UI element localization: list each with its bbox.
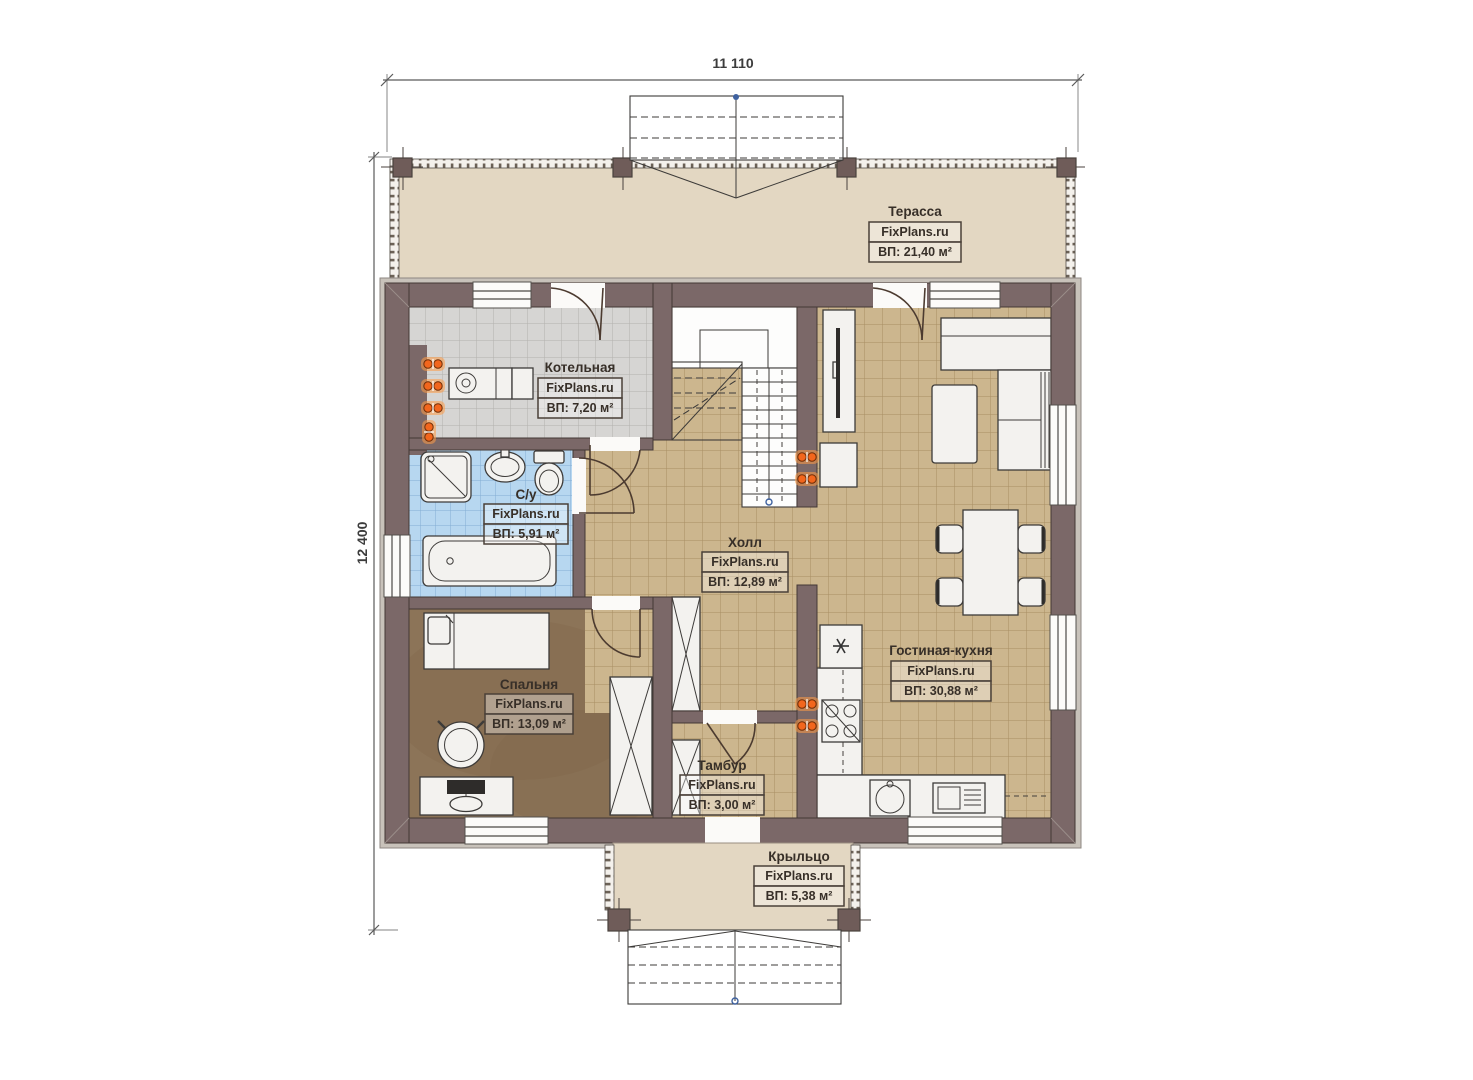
room-name: Холл — [728, 535, 762, 550]
radiator-icon — [422, 420, 436, 444]
room-name: С/у — [515, 487, 537, 502]
room-area: ВП: 5,38 м² — [766, 889, 833, 903]
dining-table — [963, 510, 1018, 615]
terrace-railing-left — [390, 166, 399, 285]
stove-icon — [822, 700, 860, 742]
bed — [424, 613, 549, 669]
radiator-icon — [795, 472, 819, 486]
room-area: ВП: 3,00 м² — [689, 798, 756, 812]
radiator-icon — [795, 697, 819, 711]
watermark-text: FixPlans.ru — [492, 507, 559, 521]
coffee-table — [932, 385, 977, 463]
desk-with-computer — [420, 777, 513, 815]
chair — [936, 578, 963, 606]
room-name: Терасса — [888, 204, 942, 219]
radiator-icon — [421, 357, 445, 371]
dimension-width-label: 11 110 — [712, 55, 753, 71]
watermark-text: FixPlans.ru — [711, 555, 778, 569]
porch-steps — [628, 930, 841, 1004]
window-living-north — [930, 282, 1000, 308]
boiler-unit — [449, 368, 533, 399]
wall-bedroom-east — [653, 597, 672, 818]
window-boiler — [473, 282, 531, 308]
window-living-east-1 — [1050, 405, 1076, 505]
stair-flight — [742, 368, 797, 507]
watermark-text: FixPlans.ru — [881, 225, 948, 239]
watermark-text: FixPlans.ru — [907, 664, 974, 678]
window-bedroom-south — [465, 817, 548, 844]
potted-plant — [438, 721, 484, 768]
kitchen-sink-icon — [870, 780, 910, 816]
toilet — [534, 451, 564, 495]
shower — [421, 452, 471, 502]
tv-unit — [823, 310, 855, 432]
room-area: ВП: 30,88 м² — [904, 684, 978, 698]
watermark-text: FixPlans.ru — [495, 697, 562, 711]
room-area: ВП: 12,89 м² — [708, 575, 782, 589]
radiator-icon — [421, 401, 445, 415]
terrace-railing-right — [1066, 166, 1075, 285]
watermark-text: FixPlans.ru — [546, 381, 613, 395]
chair — [1018, 525, 1045, 553]
radiator-icon — [795, 450, 819, 464]
room-label-boiler: Котельная FixPlans.ru ВП: 7,20 м² — [538, 360, 622, 418]
watermark-text: FixPlans.ru — [765, 869, 832, 883]
floor-plan-page: Терасса FixPlans.ru ВП: 21,40 м² Котельн… — [0, 0, 1473, 1080]
terrace-floor — [390, 166, 1075, 285]
cabinet-living — [820, 443, 857, 487]
room-name: Котельная — [545, 360, 616, 375]
chair — [936, 525, 963, 553]
porch-railing-left — [605, 845, 614, 910]
fridge-icon — [820, 625, 862, 668]
room-name: Тамбур — [698, 758, 747, 773]
wall-boiler-east — [653, 283, 672, 440]
radiator-icon — [795, 719, 819, 733]
porch-railing-right — [851, 845, 860, 910]
stair-direction-dot — [733, 94, 739, 100]
room-area: ВП: 13,09 м² — [492, 717, 566, 731]
chair — [1018, 578, 1045, 606]
watermark-text: FixPlans.ru — [688, 778, 755, 792]
oven-icon — [933, 783, 985, 813]
floor-plan-drawing: Терасса FixPlans.ru ВП: 21,40 м² Котельн… — [0, 0, 1473, 1080]
window-living-east-2 — [1050, 615, 1076, 710]
wall-east — [1051, 283, 1075, 843]
room-name: Спальня — [500, 677, 558, 692]
room-area: ВП: 5,91 м² — [493, 527, 560, 541]
radiator-icon — [421, 379, 445, 393]
stair-void — [672, 307, 797, 368]
wardrobe-hall — [672, 597, 700, 711]
window-kitchen-south — [908, 817, 1002, 844]
wardrobe-bedroom — [610, 677, 652, 815]
room-name: Гостиная-кухня — [889, 643, 992, 658]
room-area: ВП: 7,20 м² — [547, 401, 614, 415]
room-terrace — [381, 147, 1085, 285]
room-label-living-kitchen: Гостиная-кухня FixPlans.ru ВП: 30,88 м² — [889, 643, 992, 701]
room-area: ВП: 21,40 м² — [878, 245, 952, 259]
dimension-depth-label: 12 400 — [354, 521, 370, 564]
window-bathroom-west — [384, 535, 410, 597]
room-name: Крыльцо — [768, 849, 829, 864]
